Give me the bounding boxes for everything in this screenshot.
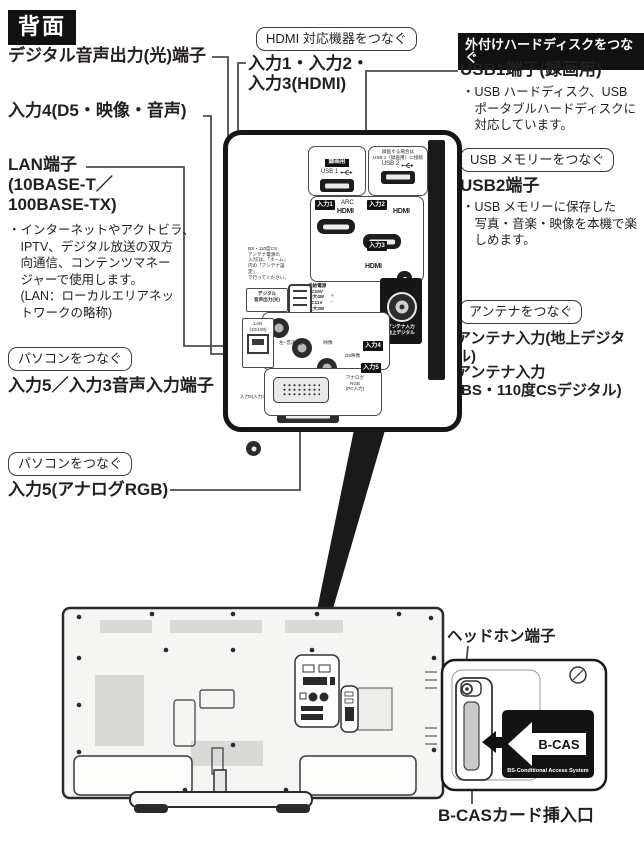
hdmi-logo-1: HDMI xyxy=(337,208,354,215)
usb2-port-label: USB 2 xyxy=(382,161,399,168)
audio-minijack xyxy=(246,441,261,456)
callout-hdmi: HDMI 対応機器をつなぐ xyxy=(256,27,417,51)
callout-pc-top: パソコンをつなぐ xyxy=(8,347,132,371)
bcas-card-subtitle: BS-Conditional Access System xyxy=(507,768,589,774)
input3-badge: 入力3 xyxy=(367,241,387,251)
label-headphone: ヘッドホン端子 xyxy=(447,628,556,646)
bcas-card-title: B-CAS xyxy=(538,737,579,752)
rca-video-caption: 映像 xyxy=(317,340,339,346)
label-usb2-desc: ・USB メモリーに保存した 写真・音楽・映像を本機で楽 しめます。 xyxy=(462,199,640,249)
usb1-port-label: USB 1 xyxy=(321,169,338,176)
vga-label: アナログ RGB (PC入力) xyxy=(335,375,375,392)
bs-power-note: BS・110度CS アンテナ電源の 入/切は、「ホーム」 内の「アンテナ設定」 … xyxy=(248,246,292,280)
label-input5-rgb: 入力5(アナログRGB) xyxy=(8,480,168,500)
label-input4: 入力4(D5・映像・音声) xyxy=(8,101,187,121)
panel-side-edge xyxy=(428,140,445,380)
callout-usb-memory: USB メモリーをつなぐ xyxy=(460,148,614,172)
lan-port xyxy=(247,334,269,354)
digital-out-label: デジタル 音声出力(光) xyxy=(247,291,287,302)
manual-page-rear-panel: B-CAS BS-Conditional Access System 背面 デジ… xyxy=(0,0,644,844)
label-input5-audio: 入力5／入力3音声入力端子 xyxy=(8,376,214,396)
usb1-port xyxy=(320,179,354,192)
vga-section: アナログ RGB (PC入力) 入力5 xyxy=(264,368,382,416)
bcas-card: B-CAS BS-Conditional Access System xyxy=(502,710,594,778)
label-bcas-slot: B-CASカード挿入口 xyxy=(438,806,594,826)
label-lan-desc: ・インターネットやアクトビラ、 IPTV、デジタル放送の双方 向通信、コンテンツ… xyxy=(8,222,224,321)
callout-pc-bottom: パソコンをつなぐ xyxy=(8,452,132,476)
lan-section: LAN (10/100) xyxy=(242,318,274,368)
hdmi-logo-3: HDMI xyxy=(365,263,382,270)
usb-icon xyxy=(401,162,414,169)
label-digital-audio-out: デジタル音声出力(光)端子 xyxy=(8,46,206,66)
vga-port xyxy=(273,377,329,403)
label-usb1-desc: ・USB ハードディスク、USB ポータブルハードディスクに 対応しています。 xyxy=(462,84,640,134)
antenna-terrestrial-jack xyxy=(387,292,417,322)
tv-rear-illustration xyxy=(63,608,443,813)
bcas-inset: B-CAS BS-Conditional Access System xyxy=(442,660,606,790)
arc-label: ARC xyxy=(341,200,354,207)
plus-minus-marks: ＋ − xyxy=(330,293,335,304)
hdmi1-port xyxy=(317,219,355,234)
label-antenna-terrestrial: アンテナ入力(地上デジタル) xyxy=(456,330,644,365)
label-usb1: USB1端子(録画用) xyxy=(460,60,602,80)
input5-badge: 入力5 xyxy=(361,363,381,373)
page-title: 背面 xyxy=(8,10,76,45)
input1-badge: 入力1 xyxy=(315,200,335,210)
label-antenna-bs: アンテナ入力 (BS・110度CSデジタル) xyxy=(456,364,622,399)
usb-icon xyxy=(340,169,353,176)
usb2-section: 録画する場合は USB 1（録画用）に接続 USB 2 xyxy=(368,146,428,196)
usb1-rec-badge: 録画用 xyxy=(325,159,350,168)
hdmi-logo-2: HDMI xyxy=(393,208,410,215)
label-lan: LAN端子 (10BASE-T／ 100BASE-TX) xyxy=(8,155,117,215)
usb2-note: 録画する場合は USB 1（録画用）に接続 xyxy=(369,149,427,160)
label-usb2: USB2端子 xyxy=(460,176,539,196)
input4-badge: 入力4 xyxy=(363,341,383,351)
label-input123-hdmi: 入力1・入力2・ 入力3(HDMI) xyxy=(248,54,369,94)
bcas-card-slot xyxy=(464,702,479,770)
usb2-port xyxy=(381,171,415,184)
usb1-section: 録画用 USB 1 xyxy=(308,146,366,196)
lan-port-label: LAN (10/100) xyxy=(243,321,273,332)
av-section: 左−音声−右 映像 D5映像 入力4 xyxy=(262,312,390,370)
d5-label: D5映像 xyxy=(345,353,360,359)
hdmi-section: 入力1 ARC HDMI 入力2 HDMI 入力3 HDMI xyxy=(310,196,424,282)
callout-antenna: アンテナをつなぐ xyxy=(459,300,582,324)
rca-audio-caption: 左−音声−右 xyxy=(267,340,315,346)
input2-badge: 入力2 xyxy=(367,200,387,210)
digital-out-label-box: デジタル 音声出力(光) xyxy=(246,288,288,312)
